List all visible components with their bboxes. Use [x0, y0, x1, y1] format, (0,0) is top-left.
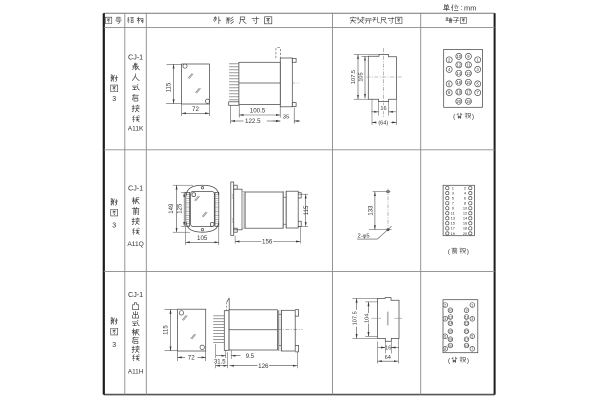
svg-text:31.5: 31.5 — [214, 359, 226, 365]
svg-text:64: 64 — [385, 355, 391, 361]
svg-text:6: 6 — [444, 335, 446, 339]
svg-text:11: 11 — [466, 62, 471, 67]
svg-text:16: 16 — [448, 330, 452, 334]
svg-text:16: 16 — [380, 106, 386, 112]
svg-text:13: 13 — [466, 71, 471, 76]
svg-text:CJ-1: CJ-1 — [128, 290, 143, 299]
svg-text:9.5: 9.5 — [246, 354, 255, 360]
svg-text:2-φ5: 2-φ5 — [358, 233, 370, 239]
svg-text:115: 115 — [166, 82, 172, 92]
svg-text:): ) — [472, 113, 474, 120]
svg-text:7: 7 — [471, 347, 473, 351]
svg-text:(64): (64) — [378, 121, 388, 127]
svg-text:156: 156 — [262, 239, 273, 246]
svg-text:72: 72 — [188, 354, 195, 361]
svg-text:): ) — [467, 248, 469, 255]
svg-text:13: 13 — [465, 322, 469, 326]
svg-text:20: 20 — [457, 99, 462, 104]
svg-text::: : — [460, 3, 462, 12]
svg-text:115: 115 — [304, 205, 310, 215]
svg-text:12: 12 — [448, 315, 452, 319]
svg-text:3: 3 — [112, 342, 116, 349]
svg-text:100.5: 100.5 — [250, 107, 266, 114]
svg-text:15: 15 — [466, 80, 471, 85]
svg-text:133: 133 — [369, 205, 375, 216]
svg-text:105: 105 — [359, 72, 365, 81]
svg-text:3: 3 — [471, 317, 473, 321]
svg-text:12: 12 — [457, 62, 462, 67]
svg-text:20: 20 — [448, 344, 452, 348]
svg-text:18: 18 — [448, 338, 452, 342]
svg-text:105: 105 — [197, 235, 208, 242]
svg-text:122.5: 122.5 — [245, 118, 261, 125]
svg-text:107.5: 107.5 — [352, 311, 358, 325]
svg-text:10: 10 — [448, 309, 452, 313]
svg-text:1: 1 — [471, 303, 473, 307]
svg-text:4: 4 — [444, 317, 446, 321]
svg-text:A11K: A11K — [128, 126, 144, 133]
svg-text:17: 17 — [465, 338, 469, 342]
svg-text:16: 16 — [385, 346, 391, 352]
svg-text:3: 3 — [112, 223, 116, 230]
svg-text:35: 35 — [283, 115, 289, 121]
svg-text:mm: mm — [464, 3, 476, 12]
svg-text:CJ-1: CJ-1 — [128, 184, 143, 193]
svg-text:107.5: 107.5 — [351, 70, 357, 84]
svg-text:104: 104 — [364, 314, 370, 323]
svg-text:16: 16 — [457, 80, 462, 85]
svg-text:9: 9 — [466, 309, 468, 313]
svg-text:8: 8 — [444, 347, 446, 351]
svg-text:CJ-1: CJ-1 — [128, 53, 143, 62]
svg-text:149: 149 — [169, 203, 175, 214]
svg-text:3: 3 — [112, 96, 116, 103]
svg-text:18: 18 — [457, 90, 462, 95]
svg-text:72: 72 — [192, 106, 199, 113]
svg-text:): ) — [467, 357, 469, 364]
svg-text:15: 15 — [465, 330, 469, 334]
svg-text:14: 14 — [457, 71, 462, 76]
svg-text:10: 10 — [457, 54, 462, 59]
svg-text:11: 11 — [465, 315, 469, 319]
svg-text:125: 125 — [178, 203, 184, 214]
svg-text:19: 19 — [451, 231, 455, 236]
svg-text:2: 2 — [444, 303, 446, 307]
svg-text:19: 19 — [465, 344, 469, 348]
svg-text:14: 14 — [448, 322, 452, 326]
svg-text:A11Q: A11Q — [127, 241, 143, 248]
svg-text:126: 126 — [258, 363, 269, 370]
svg-text:5: 5 — [471, 335, 473, 339]
svg-text:17: 17 — [466, 90, 471, 95]
svg-text:19: 19 — [466, 99, 471, 104]
svg-text:A11H: A11H — [128, 368, 144, 375]
svg-text:115: 115 — [163, 325, 169, 335]
